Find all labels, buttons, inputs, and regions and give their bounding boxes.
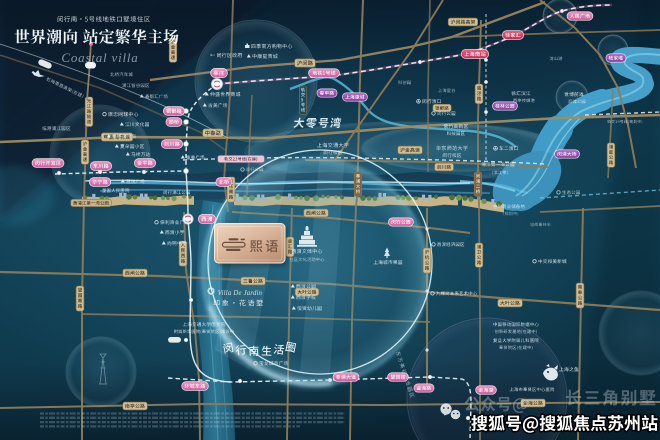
svg-text:Coastal villa: Coastal villa <box>61 50 138 65</box>
svg-text:Villa De Jardin: Villa De Jardin <box>218 290 263 297</box>
